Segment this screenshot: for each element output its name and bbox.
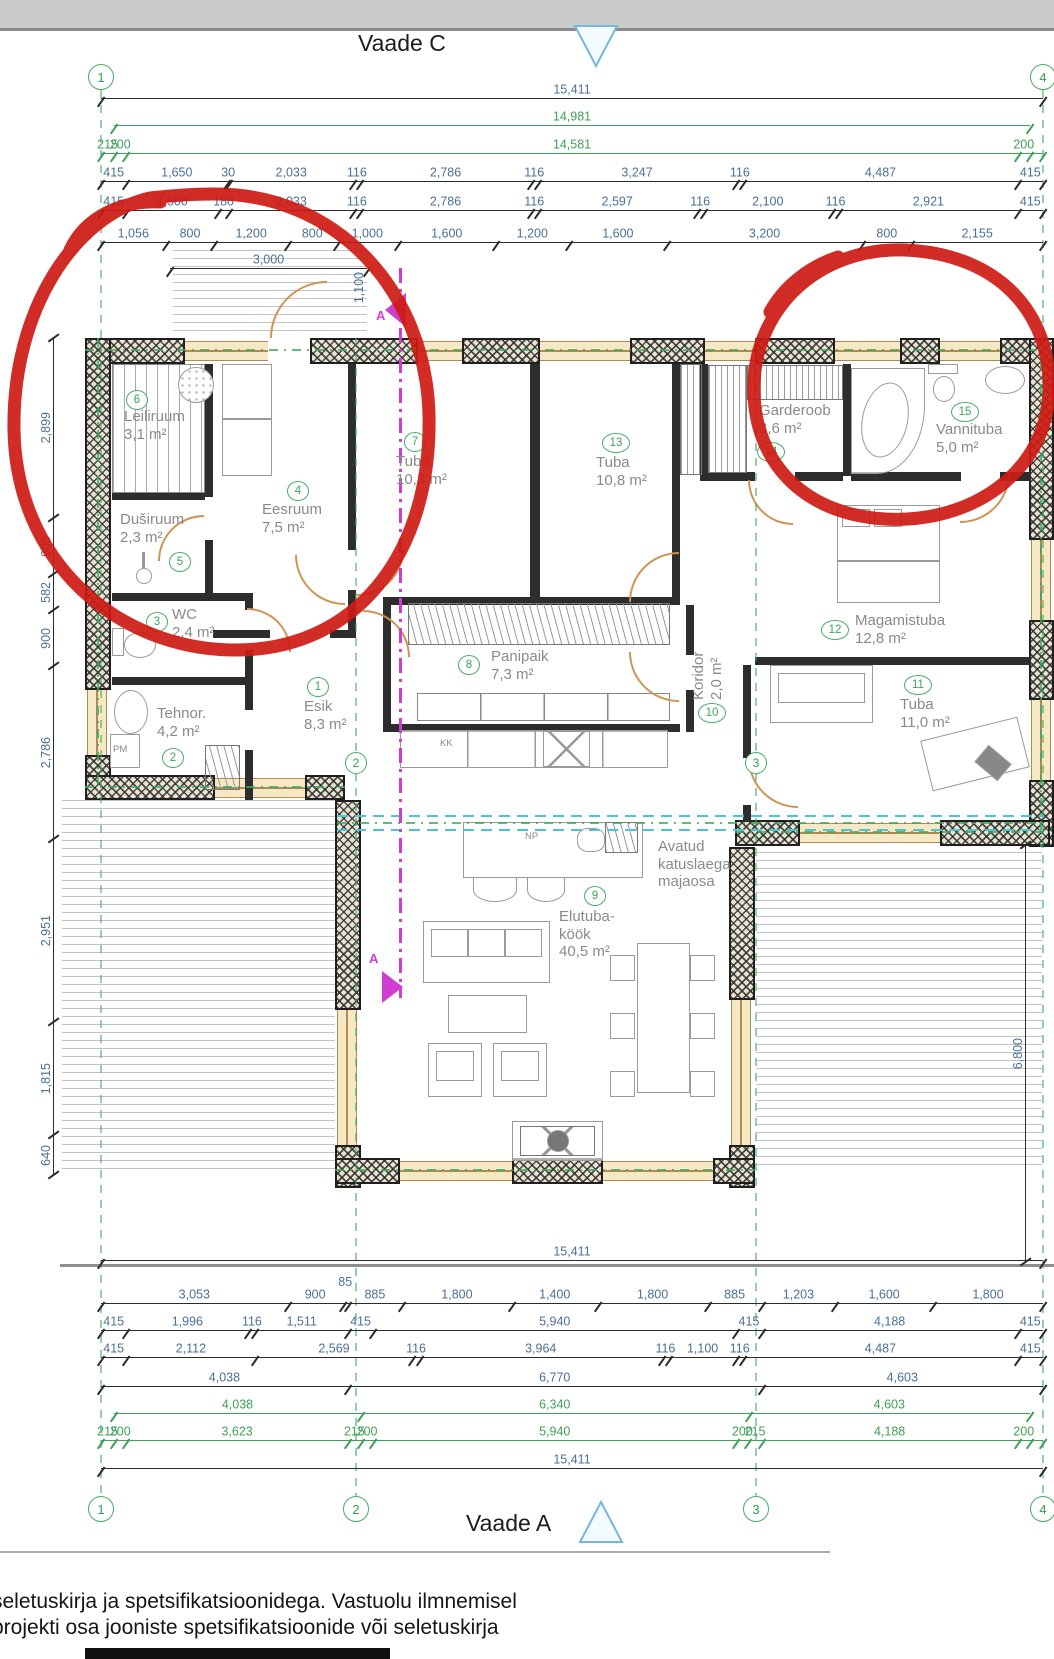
room-label-line: köök: [559, 926, 569, 944]
dimension-row: 15,411: [101, 1452, 1043, 1469]
dim-label: 2,597: [602, 195, 633, 208]
room-label-line: 7,3 m²: [491, 666, 501, 684]
reference-line: [337, 829, 1043, 831]
dim-segment: 116: [736, 1345, 743, 1358]
grid-line: [1042, 90, 1044, 1496]
dim-segment: 1,800: [933, 1291, 1043, 1304]
interior-wall: [686, 605, 694, 655]
dim-segment: 1,200: [214, 230, 287, 243]
wall-segment: [630, 338, 705, 364]
room-number-badge: 3: [146, 612, 168, 632]
grid-bubble: 2: [343, 1496, 369, 1522]
dim-label: 1,600: [868, 1288, 899, 1301]
dim-label: 800: [302, 227, 323, 240]
room-label-line: 8,3 m²: [304, 716, 314, 734]
room-number-badge: 1: [307, 677, 329, 697]
room-label: Elutuba-köök40,5 m²: [559, 908, 569, 918]
dim-label: 6,770: [539, 1371, 570, 1384]
dim-label: 1,800: [972, 1288, 1003, 1301]
room-label: Leiliruum3,1 m²: [124, 408, 134, 418]
room-label-line: Tuba: [900, 696, 910, 714]
dim-label: 415: [103, 1315, 124, 1328]
bar-stool: [473, 878, 517, 902]
dim-label: 3,247: [621, 166, 652, 179]
room-label-line: Magamistuba: [855, 612, 865, 630]
grid-line: [100, 90, 102, 1496]
dim-segment: 116: [248, 1318, 255, 1331]
dim-label: 15,411: [553, 1453, 590, 1466]
dining-chair: [610, 1071, 635, 1097]
dim-segment: 15,411: [101, 1456, 1043, 1469]
room-label-line: Garderoob: [759, 402, 769, 420]
dim-segment: 14,581: [126, 141, 1017, 154]
dim-segment: 4,188: [762, 1428, 1018, 1441]
dim-label: 3,200: [749, 227, 780, 240]
dim-label: 5,940: [539, 1425, 570, 1438]
interior-wall: [843, 364, 851, 476]
room-label: Koridor2,0 m²: [690, 690, 700, 700]
dim-segment: 2,597: [538, 198, 697, 211]
room-number-badge: 5: [169, 552, 191, 572]
dim-label: 1,200: [235, 227, 266, 240]
dim-segment: 3,053: [101, 1291, 288, 1304]
room-number-badge: 11: [904, 675, 932, 695]
dimension-row: 3,000: [170, 252, 367, 269]
wall-segment: [512, 1158, 603, 1184]
dim-segment: 3,623: [126, 1428, 347, 1441]
dim-segment: 4,487: [743, 169, 1017, 182]
room-number-badge: 12: [821, 620, 849, 640]
room-label: Vannituba5,0 m²: [936, 421, 946, 431]
room-label-line: 7,5 m²: [262, 519, 272, 537]
dim-segment: 4,603: [762, 1374, 1043, 1387]
dim-label: 800: [876, 227, 897, 240]
interior-wall: [245, 750, 253, 800]
floor-plan-sheet: Vaade C Vaade A seletuskirja ja spetsifi…: [0, 0, 1054, 1659]
room-label-line: 10,8 m²: [596, 472, 606, 490]
dining-table: [637, 943, 690, 1093]
dim-label: 415: [1020, 166, 1041, 179]
dim-segment: 1,600: [569, 230, 667, 243]
eesruum-closet: [222, 364, 272, 476]
dimension-row: 14,981: [114, 109, 1030, 126]
dim-label: 15,411: [553, 83, 590, 96]
reference-line: [735, 831, 1050, 833]
wall-segment: [900, 338, 940, 364]
dim-segment: 116: [662, 1345, 669, 1358]
dim-segment: 200: [1018, 141, 1030, 154]
interior-wall: [530, 364, 540, 600]
dim-segment: 116: [736, 169, 743, 182]
dim-segment: 1,650: [126, 169, 227, 182]
room-label: Tehnor.4,2 m²: [157, 705, 167, 715]
entry-dim-rotated: 1,100: [352, 272, 366, 303]
dim-segment: 2,786: [360, 198, 530, 211]
bed-line: [837, 560, 940, 562]
dim-segment: 116: [531, 169, 538, 182]
dim-segment: 2,899: [37, 338, 53, 518]
footer-black-bar: [85, 1648, 390, 1659]
dim-segment: 3,200: [667, 230, 863, 243]
dim-label: 415: [739, 1315, 760, 1328]
island-hob: [605, 822, 638, 853]
dim-label: 2,569: [318, 1342, 349, 1355]
room-number-badge: 8: [458, 655, 480, 675]
dim-label: 885: [364, 1288, 385, 1301]
interior-wall: [112, 677, 253, 685]
dim-segment: 415: [1018, 169, 1043, 182]
room-number-badge: 4: [287, 481, 309, 501]
dim-label: 6,800: [1011, 1038, 1025, 1069]
dim-segment: 2,155: [911, 230, 1043, 243]
grid-bubble-inplan: 2: [345, 752, 367, 774]
room-label-line: Elutuba-: [559, 908, 569, 926]
sofa-cushion: [431, 929, 468, 957]
dim-segment: 415: [101, 1345, 126, 1358]
room-label-line: Duširuum: [120, 511, 130, 529]
dimension-row: 4152,1122,5691163,9641161,1001164,487415: [101, 1341, 1043, 1358]
dim-segment: 800: [862, 230, 911, 243]
dim-label: 1,600: [431, 227, 462, 240]
dim-segment: 1,100: [669, 1345, 736, 1358]
dim-label: 1,203: [783, 1288, 814, 1301]
dim-segment: 116: [697, 198, 704, 211]
dim-label: 3,000: [253, 253, 284, 266]
dimension-row: 3,053900858851,8001,4001,8008851,2031,60…: [101, 1287, 1043, 1304]
view-marker-top-icon: [573, 24, 619, 68]
dim-label: 415: [103, 195, 124, 208]
dim-segment: 4,603: [749, 1401, 1030, 1414]
wall-segment: [713, 1158, 755, 1184]
interior-wall: [245, 650, 253, 685]
interior-wall: [700, 472, 755, 481]
wall-segment: [310, 338, 418, 364]
dim-label: 1,500: [157, 195, 188, 208]
dimension-row: 1,0568001,2008001,0001,6001,2001,6003,20…: [101, 226, 1043, 243]
dimension-row: 4,0386,7704,603: [101, 1370, 1043, 1387]
dim-segment: 15,411: [101, 1248, 1043, 1261]
open-roof-note-line: katuslaega: [658, 856, 748, 874]
label-kk: KK: [440, 738, 470, 750]
dim-label: 900: [39, 536, 53, 557]
dim-label: 2,100: [752, 195, 783, 208]
door-arc: [357, 549, 404, 596]
open-roof-note-line: Avatud: [658, 838, 748, 856]
dim-label: 800: [180, 227, 201, 240]
dim-label: 415: [1020, 195, 1041, 208]
dim-label: 415: [350, 1315, 371, 1328]
wardrobe-hatch: [680, 364, 702, 475]
door-arc: [363, 610, 410, 657]
dim-label: 900: [39, 628, 53, 649]
dim-segment: 1,800: [598, 1291, 708, 1304]
footer-text-2: projekti osa jooniste spetsifikatsioonid…: [0, 1616, 499, 1640]
dimension-row: 4151,9961161,5114155,9404154,188415: [101, 1314, 1043, 1331]
dim-segment: 1,200: [496, 230, 569, 243]
dim-segment: 2,921: [839, 198, 1018, 211]
wall-segment: [335, 1158, 400, 1184]
room-label-line: 2,0 m²: [708, 690, 726, 700]
dim-segment: 180: [218, 198, 229, 211]
interior-wall: [205, 540, 213, 593]
wc-toilet-tank: [112, 628, 124, 656]
dim-segment: 6,800: [1009, 845, 1025, 1262]
dim-label: 4,487: [865, 166, 896, 179]
dim-segment: 200: [114, 141, 126, 154]
dim-label: 1,650: [161, 166, 192, 179]
room-label-line: 5,0 m²: [936, 439, 946, 457]
room-label-line: Esik: [304, 698, 314, 716]
dim-segment: 14,981: [114, 113, 1030, 126]
dim-label: 1,200: [517, 227, 548, 240]
dim-segment: 2,033: [229, 198, 353, 211]
wc-toilet-bowl: [124, 632, 156, 658]
dining-chair: [690, 1071, 715, 1097]
reference-line: [85, 786, 345, 788]
dim-segment: 415: [1018, 1318, 1043, 1331]
dim-label: 2,921: [913, 195, 944, 208]
dim-label: 1,056: [118, 227, 149, 240]
dim-segment: 6,770: [348, 1374, 762, 1387]
room-label-line: Eesruum: [262, 501, 272, 519]
dim-label: 1,600: [602, 227, 633, 240]
door-arc: [295, 555, 345, 605]
dim-label: 900: [305, 1288, 326, 1301]
open-roof-note: Avatudkatuslaegamajaosa: [658, 838, 748, 898]
dim-segment: 1,400: [512, 1291, 598, 1304]
dim-label: 582: [39, 582, 53, 603]
dim-segment: 415: [736, 1318, 761, 1331]
dim-segment: 1,600: [835, 1291, 933, 1304]
dim-segment: 116: [832, 198, 839, 211]
dim-segment: 5,940: [373, 1318, 736, 1331]
room-label-line: Tuba: [596, 454, 606, 472]
room-label-line: Tuba: [396, 453, 406, 471]
grid-bubble: 3: [743, 1496, 769, 1522]
dimension-chain-vertical: 6,800: [1009, 845, 1026, 1262]
dim-label: 2,786: [430, 166, 461, 179]
dim-label: 4,038: [209, 1371, 240, 1384]
interior-wall: [112, 493, 205, 500]
sauna-heater: [178, 367, 214, 403]
shower-stem: [142, 552, 145, 568]
bed-pillow: [842, 509, 870, 527]
grid-bubble: 4: [1030, 64, 1054, 90]
dim-segment: 415: [101, 198, 126, 211]
dim-label: 1,511: [286, 1315, 316, 1328]
dim-label: 4,038: [222, 1398, 253, 1411]
dim-label: 2,033: [276, 195, 307, 208]
reference-line: [335, 1169, 755, 1171]
dim-label: 14,981: [553, 110, 591, 123]
reference-line: [97, 338, 99, 799]
dim-label: 1,800: [441, 1288, 472, 1301]
room-label-line: 3,1 m²: [124, 426, 134, 444]
footer-text-1: seletuskirja ja spetsifikatsioonidega. V…: [0, 1590, 517, 1614]
dim-segment: 5,940: [373, 1428, 736, 1441]
dim-label: 4,188: [874, 1425, 905, 1438]
dim-label: 885: [724, 1288, 745, 1301]
dim-segment: 1,800: [402, 1291, 512, 1304]
dim-label: 415: [1020, 1342, 1041, 1355]
section-line-a: [399, 268, 402, 998]
dim-segment: 4,188: [762, 1318, 1018, 1331]
dimension-row: 15,411: [101, 82, 1043, 99]
door-arc: [629, 552, 679, 602]
entry-opening: [268, 340, 312, 362]
interior-wall: [245, 685, 253, 710]
reference-line: [337, 822, 1043, 824]
sofa-tuba11-seat: [778, 673, 865, 703]
dim-segment: 640: [37, 1135, 53, 1175]
room-label: Tuba10,8 m²: [596, 454, 606, 464]
dim-segment: 885: [708, 1291, 762, 1304]
closet-shelf: [222, 418, 272, 420]
room-number-badge: 2: [162, 748, 184, 768]
interior-wall: [112, 593, 253, 601]
dimension-row: 4151,5001802,0331162,7861162,5971162,100…: [101, 194, 1043, 211]
bed-pillow: [874, 509, 902, 527]
island-sink: [577, 828, 605, 852]
room-label-line: 2,4 m²: [172, 624, 182, 642]
section-marker-mid-icon: [382, 971, 403, 1003]
dim-segment: 415: [101, 1318, 126, 1331]
dim-segment: 900: [37, 518, 53, 574]
dim-label: 415: [103, 1342, 124, 1355]
grid-bubble: 1: [88, 1496, 114, 1522]
dim-segment: 1,500: [126, 198, 218, 211]
armchair-seat: [501, 1051, 539, 1081]
dim-label: 2,112: [176, 1342, 206, 1355]
dim-label: 1,815: [39, 1063, 53, 1094]
dim-label: 200: [1013, 138, 1034, 151]
dim-label: 3,623: [221, 1425, 252, 1438]
kitchen-sink-unit: [543, 731, 590, 767]
dim-segment: 2,951: [37, 839, 53, 1022]
dim-segment: 3,000: [170, 256, 367, 269]
dim-segment: 4,038: [101, 1374, 348, 1387]
dim-label: 5,940: [539, 1315, 570, 1328]
view-marker-bottom-icon: [578, 1500, 624, 1544]
dim-segment: 415: [1018, 198, 1043, 211]
dim-segment: 415: [348, 1318, 373, 1331]
dim-segment: 2,786: [37, 666, 53, 839]
dim-segment: 200: [361, 1428, 373, 1441]
dim-label: 4,487: [865, 1342, 896, 1355]
interior-wall: [795, 472, 843, 481]
tehnor-sink: [114, 690, 148, 734]
dim-segment: 415: [1018, 1345, 1043, 1358]
dim-segment: 1,000: [337, 230, 398, 243]
dim-segment: 4,038: [114, 1401, 361, 1414]
grid-bubble-inplan: 3: [745, 752, 767, 774]
room-number-badge: 9: [584, 886, 606, 906]
room-number-badge: 7: [404, 432, 426, 452]
armchair-seat: [436, 1051, 474, 1081]
dim-segment: 582: [37, 574, 53, 610]
door-arc: [247, 608, 291, 652]
dim-segment: 2,100: [704, 198, 832, 211]
section-letter-mid: A: [369, 951, 378, 966]
room-label-line: 2,3 m²: [120, 529, 130, 547]
dim-label: 1,400: [539, 1288, 570, 1301]
reference-line: [85, 349, 1050, 351]
wardrobe-hatch: [747, 365, 843, 400]
grid-bubble: 1: [88, 64, 114, 90]
sofa-cushion: [468, 929, 505, 957]
toilet2-bowl: [933, 376, 955, 402]
room-label-line: 40,5 m²: [559, 943, 569, 961]
reference-line: [1040, 338, 1042, 847]
toilet2-tank: [928, 364, 958, 374]
dim-label: 200: [1013, 1425, 1034, 1438]
dim-label: 4,603: [887, 1371, 918, 1384]
dim-segment: 2,112: [126, 1345, 255, 1358]
dim-segment: 800: [166, 230, 215, 243]
dimension-row: 2152003,6232152005,9402002154,188200: [101, 1424, 1043, 1441]
dim-segment: 900: [288, 1291, 343, 1304]
room-label-line: Koridor: [690, 690, 708, 700]
footer-divider: [0, 1551, 830, 1553]
dining-chair: [690, 1013, 715, 1039]
shower-symbol: [136, 568, 152, 584]
section-letter-top: A: [376, 308, 385, 323]
room-label-line: 3,6 m²: [759, 420, 769, 438]
dim-label: 2,033: [276, 166, 307, 179]
room-label-line: 12,8 m²: [855, 630, 865, 648]
terrace-bottom-right: [756, 852, 1042, 1170]
terrace-bottom-left: [62, 800, 335, 1172]
door-arc: [960, 473, 1010, 523]
fireplace-flue: [547, 1130, 569, 1152]
room-label-line: 10,3 m²: [396, 471, 406, 489]
interior-wall: [743, 665, 751, 758]
dim-segment: 885: [348, 1291, 402, 1304]
room-label: WC2,4 m²: [172, 606, 182, 616]
sofa-cushion: [505, 929, 542, 957]
dim-label: 3,964: [525, 1342, 556, 1355]
room-label: Garderoob3,6 m²: [759, 402, 769, 412]
room-label-line: WC: [172, 606, 182, 624]
dim-segment: 1,511: [255, 1318, 347, 1331]
room-label-line: Leiliruum: [124, 408, 134, 426]
dimension-chain-vertical: 2,8999005829002,7862,9511,815640: [37, 338, 54, 1175]
grid-bubble: 4: [1030, 1496, 1054, 1522]
wardrobe-hatch: [408, 603, 670, 645]
dim-label: 1,100: [687, 1342, 718, 1355]
dimension-row: 4,0386,3404,603: [114, 1397, 1030, 1414]
dim-label: 415: [1020, 1315, 1041, 1328]
open-roof-note-line: majaosa: [658, 873, 748, 891]
dim-label: 2,786: [430, 195, 461, 208]
dim-segment: 2,786: [360, 169, 530, 182]
dim-segment: 1,056: [101, 230, 166, 243]
dim-label: 3,053: [179, 1288, 210, 1301]
dim-label: 6,340: [539, 1398, 570, 1411]
room-label-line: Vannituba: [936, 421, 946, 439]
dim-segment: 200: [114, 1428, 126, 1441]
dim-label: 2,899: [39, 412, 53, 443]
dim-label: 4,603: [874, 1398, 905, 1411]
room-label: Magamistuba12,8 m²: [855, 612, 865, 622]
room-label: Panipaik7,3 m²: [491, 648, 501, 658]
dim-segment: 1,600: [398, 230, 496, 243]
dim-label: 1,800: [637, 1288, 668, 1301]
dim-segment: 4,487: [743, 1345, 1017, 1358]
dim-label: 15,411: [553, 1245, 590, 1258]
dim-label: 1,000: [352, 227, 383, 240]
dim-label: 85: [338, 1276, 352, 1289]
